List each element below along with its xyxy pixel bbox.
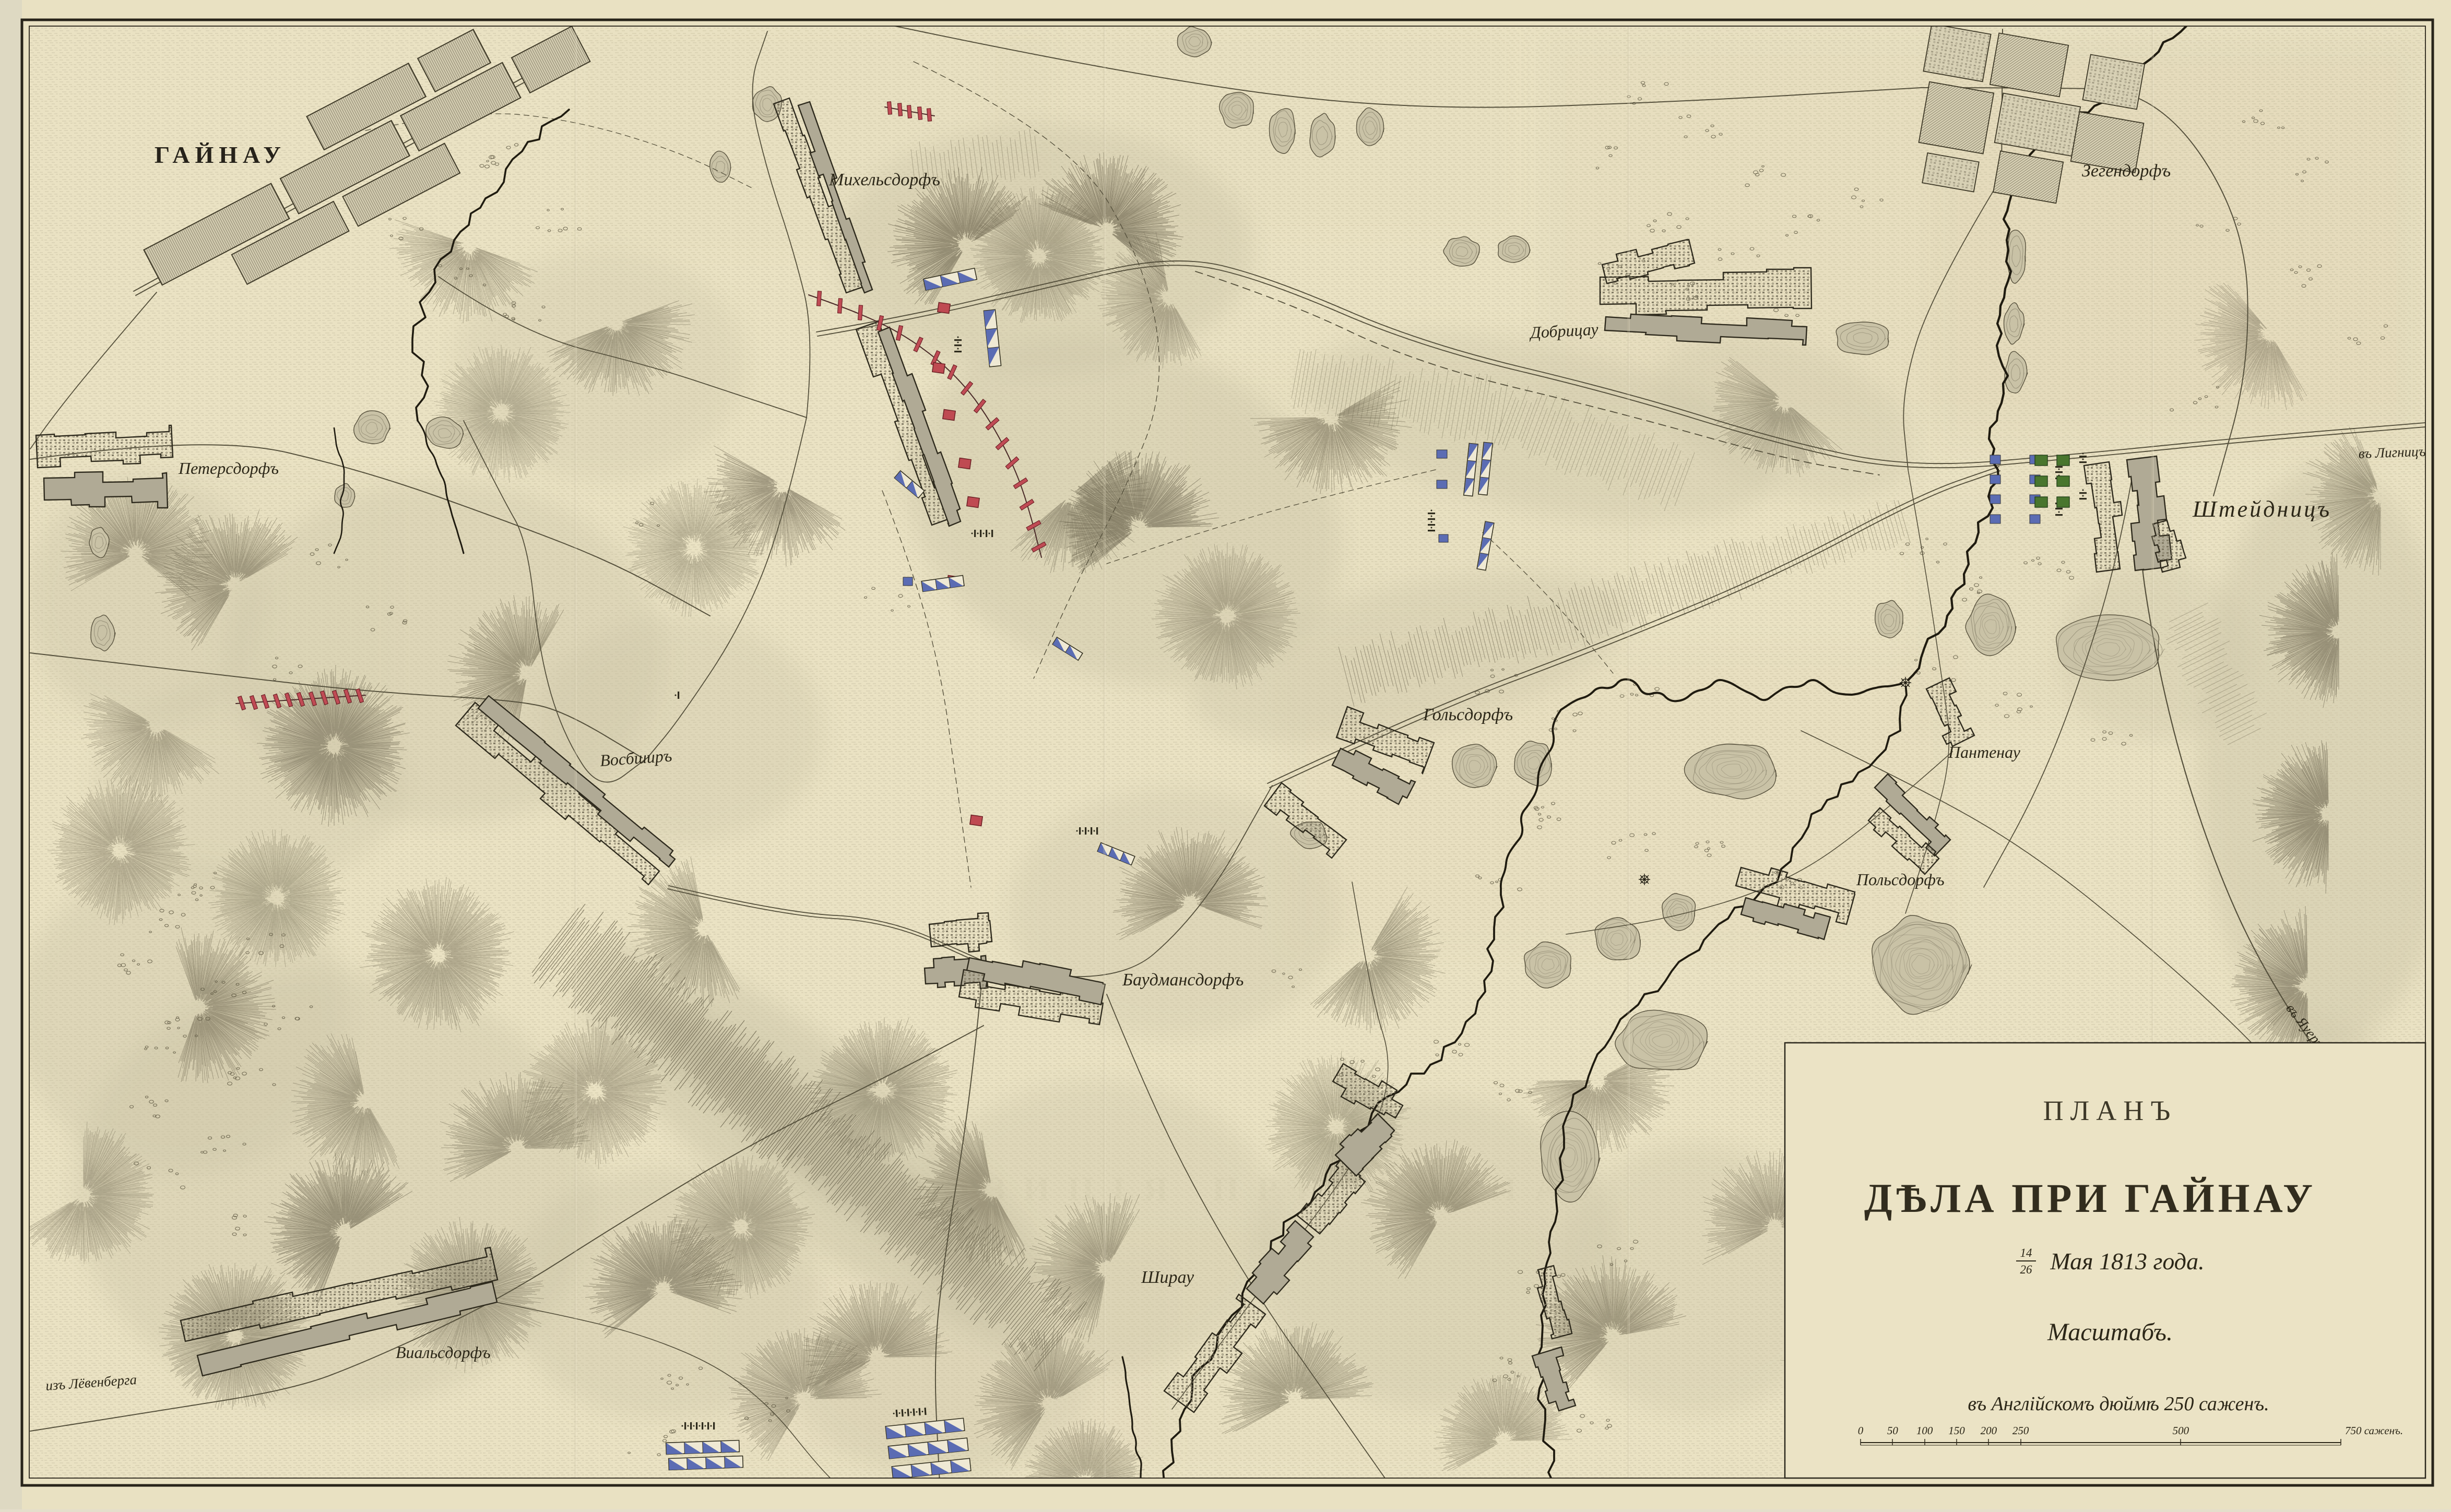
svg-text:ПЛАНЪ: ПЛАНЪ xyxy=(2043,1095,2177,1126)
svg-text:Баудмансдорфъ: Баудмансдорфъ xyxy=(1122,970,1244,990)
svg-text:Пантенау: Пантенау xyxy=(1948,743,2021,761)
svg-text:100: 100 xyxy=(1916,1424,1933,1437)
svg-text:750 саженъ.: 750 саженъ. xyxy=(2345,1424,2403,1437)
svg-text:въ Англійскомъ дюймѣ 250 сажен: въ Англійскомъ дюймѣ 250 саженъ. xyxy=(1968,1393,2269,1415)
svg-text:0: 0 xyxy=(1858,1424,1864,1437)
svg-text:26: 26 xyxy=(2020,1263,2033,1276)
svg-text:200: 200 xyxy=(1981,1424,1997,1437)
svg-text:Масштабъ.: Масштабъ. xyxy=(2047,1318,2173,1346)
svg-text:Добрицау: Добрицау xyxy=(1528,319,1599,342)
svg-text:500: 500 xyxy=(2173,1424,2189,1437)
svg-text:Польсдорфъ: Польсдорфъ xyxy=(1856,870,1945,889)
svg-text:ПОЗИЦІЯ ПРИ ГАЙНАУ: ПОЗИЦІЯ ПРИ ГАЙНАУ xyxy=(898,1170,1617,1208)
svg-text:Петерсдорфъ: Петерсдорфъ xyxy=(178,459,279,478)
svg-text:Зегендорфъ: Зегендорфъ xyxy=(2082,161,2171,181)
svg-text:50: 50 xyxy=(1887,1424,1899,1437)
svg-text:ГАЙНАУ: ГАЙНАУ xyxy=(155,141,286,168)
svg-text:въ Лигницъ.: въ Лигницъ. xyxy=(2358,443,2430,461)
svg-text:250: 250 xyxy=(2012,1424,2029,1437)
svg-text:14: 14 xyxy=(2020,1246,2032,1259)
svg-text:Ширау: Ширау xyxy=(1141,1268,1194,1287)
svg-text:Виальсдорфъ: Виальсдорфъ xyxy=(396,1343,491,1362)
svg-text:150: 150 xyxy=(1948,1424,1965,1437)
svg-text:Штейдницъ: Штейдницъ xyxy=(2192,496,2331,522)
svg-text:Мая 1813 года.: Мая 1813 года. xyxy=(2050,1248,2204,1275)
svg-text:Гольсдорфъ: Гольсдорфъ xyxy=(1423,705,1513,724)
svg-text:ДѢЛА ПРИ ГАЙНАУ: ДѢЛА ПРИ ГАЙНАУ xyxy=(1864,1175,2316,1221)
svg-text:Михельсдорфъ: Михельсдорфъ xyxy=(828,170,940,189)
